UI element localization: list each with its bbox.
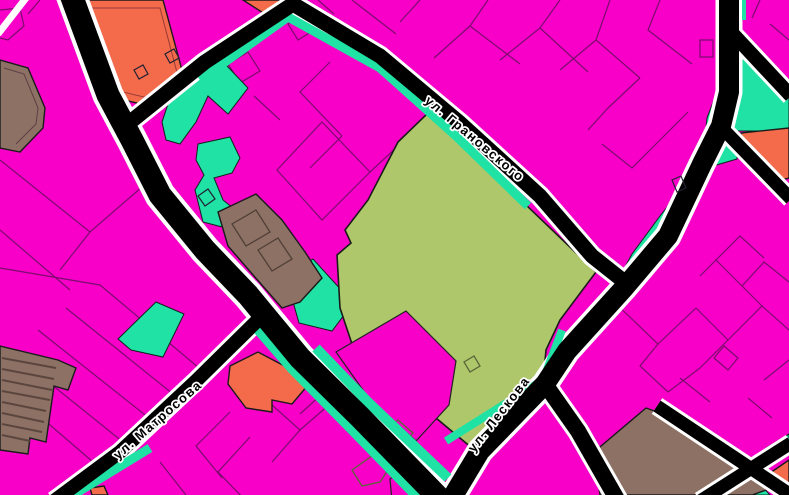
- zoning-map: ул. Грановского ул. Матросова ул. Лесков…: [0, 0, 789, 495]
- map-canvas[interactable]: ул. Грановского ул. Матросова ул. Лесков…: [0, 0, 789, 495]
